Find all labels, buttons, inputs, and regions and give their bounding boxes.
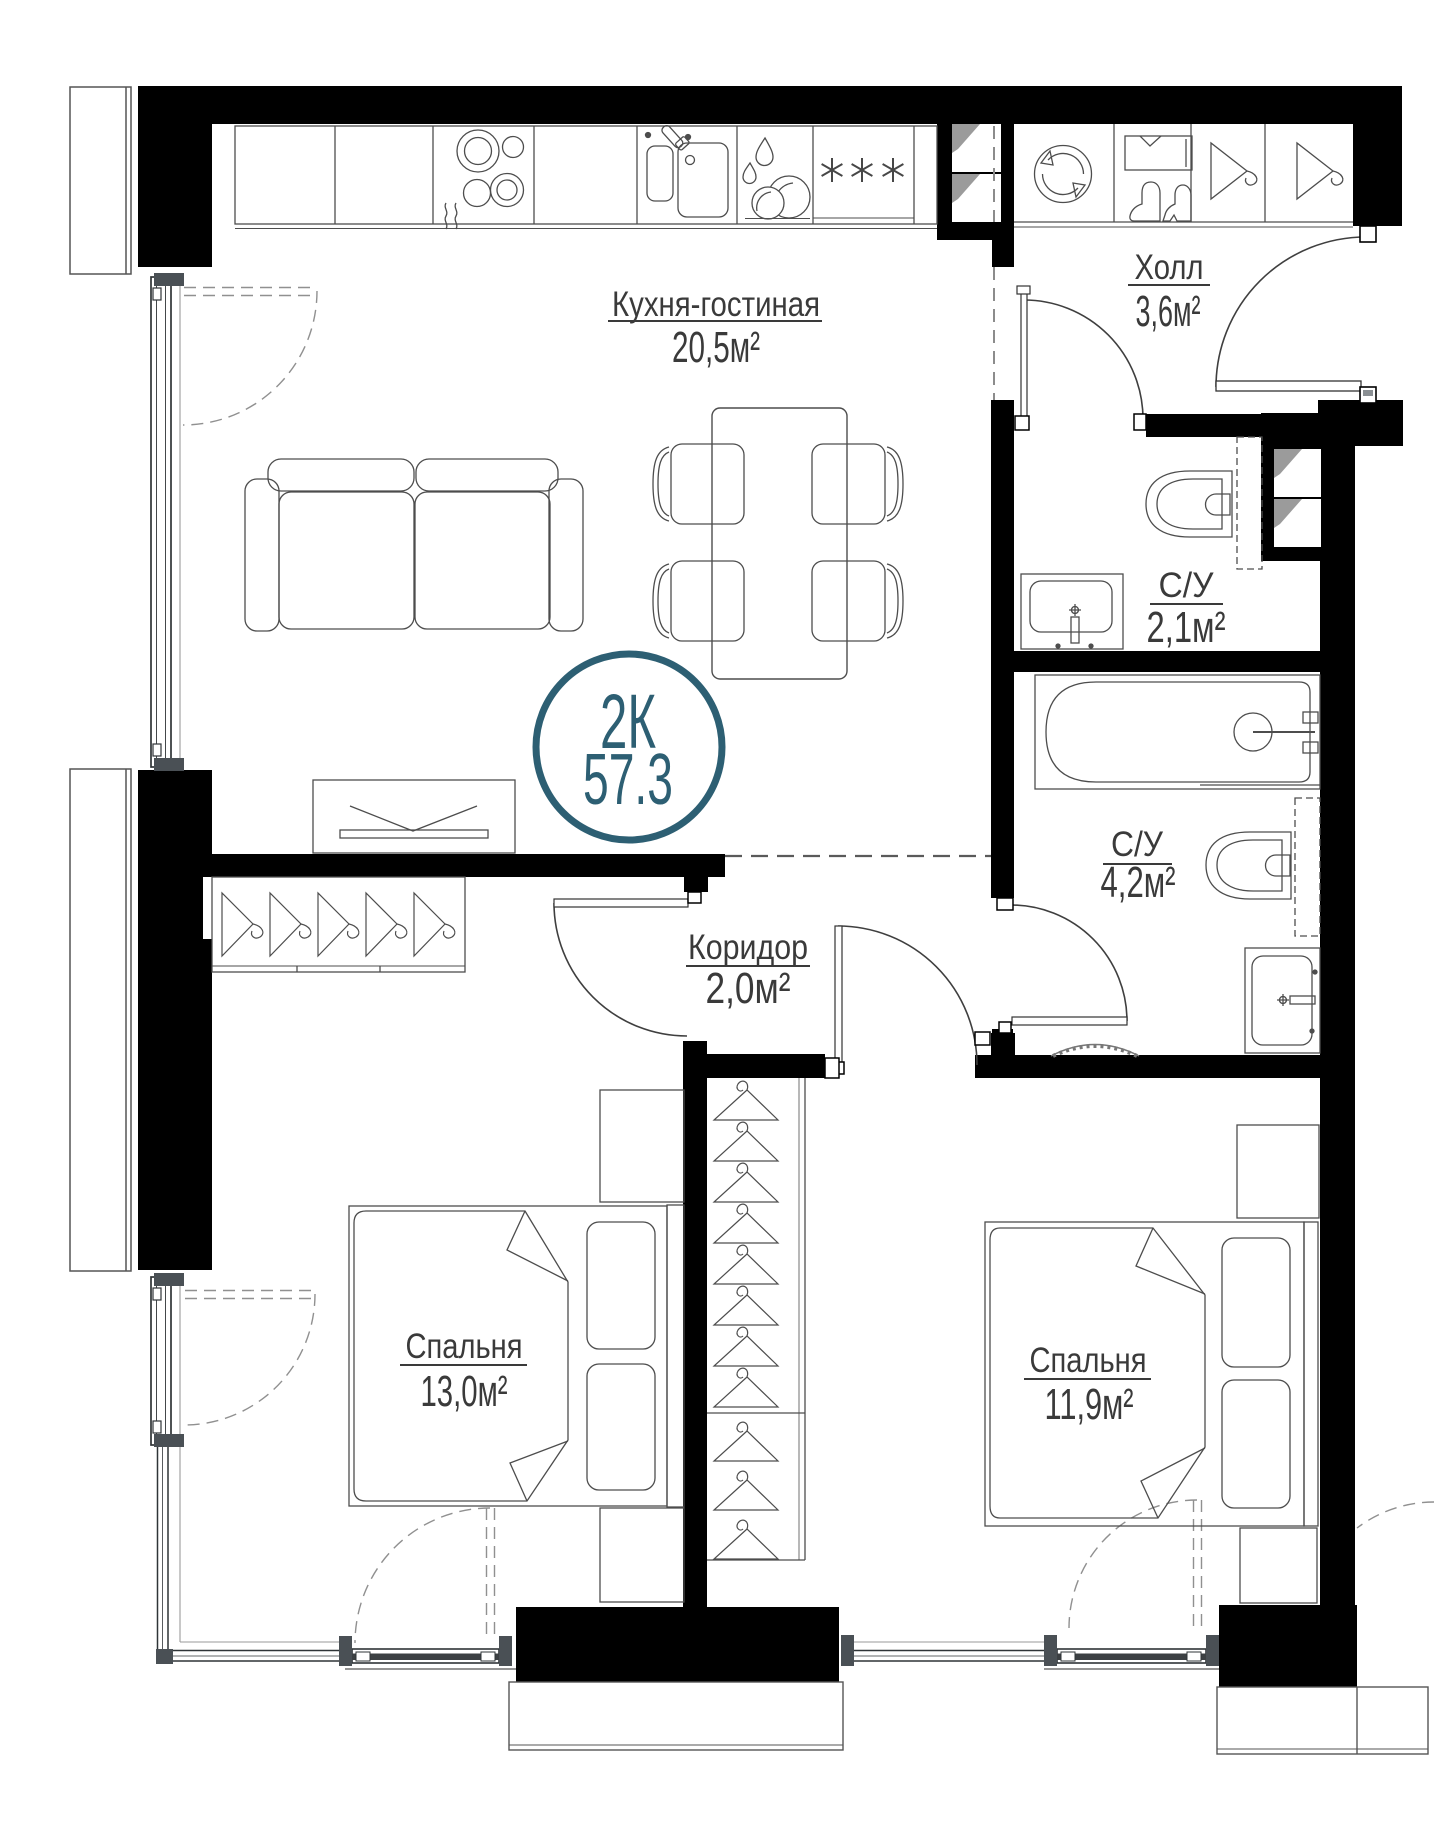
svg-text:Спальня: Спальня xyxy=(1030,1341,1147,1380)
svg-text:2,1м²: 2,1м² xyxy=(1147,603,1226,652)
svg-text:С/У: С/У xyxy=(1159,566,1215,605)
svg-text:20,5м²: 20,5м² xyxy=(672,323,760,372)
svg-text:3,6м²: 3,6м² xyxy=(1136,287,1201,336)
svg-text:11,9м²: 11,9м² xyxy=(1045,1380,1134,1429)
svg-text:57.3: 57.3 xyxy=(583,740,673,820)
svg-text:Холл: Холл xyxy=(1135,248,1204,287)
svg-text:4,2м²: 4,2м² xyxy=(1101,858,1176,907)
svg-text:Кухня-гостиная: Кухня-гостиная xyxy=(612,285,820,324)
svg-text:Коридор: Коридор xyxy=(688,928,808,967)
svg-text:2,0м²: 2,0м² xyxy=(706,964,791,1013)
svg-text:13,0м²: 13,0м² xyxy=(421,1367,508,1416)
svg-text:Спальня: Спальня xyxy=(406,1327,523,1366)
